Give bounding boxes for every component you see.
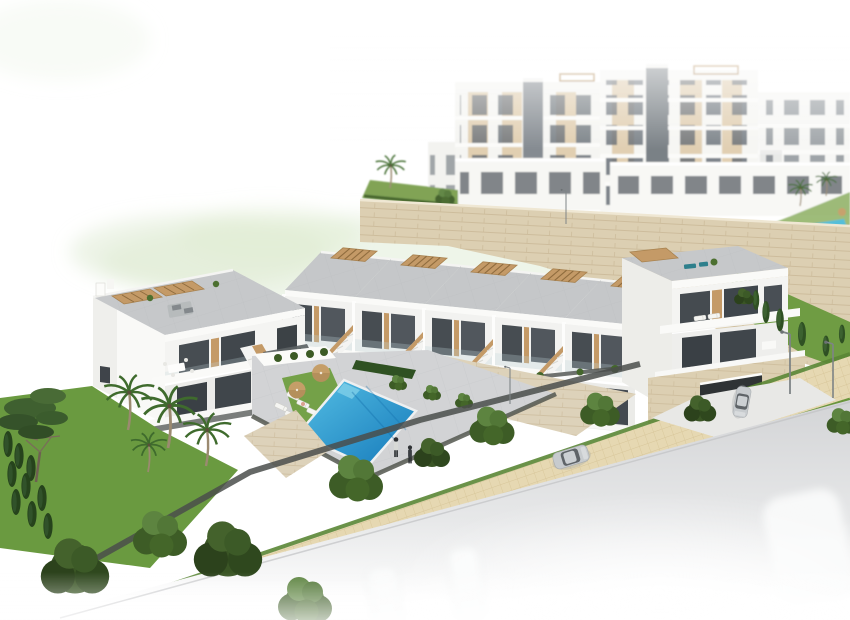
render-canvas	[0, 0, 850, 620]
cypress-tree	[43, 513, 52, 539]
bottom-fade	[0, 572, 850, 620]
architectural-render	[0, 0, 850, 620]
chimney	[107, 279, 114, 289]
parasol-icon	[312, 364, 330, 382]
top-fade	[330, 30, 850, 150]
villa-side-door	[100, 366, 110, 383]
cypress-tree	[37, 485, 46, 511]
roof-plant	[711, 259, 718, 266]
cypress-tree	[11, 489, 20, 515]
conifer-tree	[776, 308, 784, 331]
parasol-icon	[289, 382, 306, 399]
cypress-tree	[7, 461, 16, 487]
conifer-tree	[798, 322, 806, 346]
cypress-tree	[21, 473, 30, 499]
conifer-tree	[839, 325, 845, 344]
towel	[301, 402, 305, 406]
cypress-tree	[27, 501, 36, 527]
cypress-tree	[14, 443, 23, 469]
conifer-tree	[823, 336, 830, 357]
cypress-tree	[3, 431, 12, 457]
chimney	[96, 283, 105, 296]
parasol-icon	[838, 208, 846, 216]
conifer-tree	[762, 301, 769, 323]
